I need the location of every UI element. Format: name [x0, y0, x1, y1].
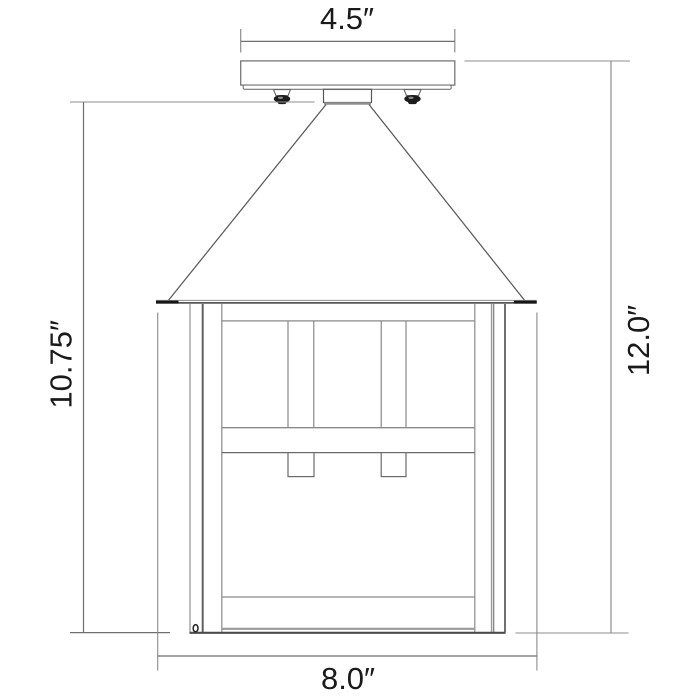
- svg-text:8.0″: 8.0″: [321, 661, 375, 696]
- svg-text:12.0″: 12.0″: [621, 305, 656, 376]
- svg-text:4.5″: 4.5″: [320, 1, 374, 36]
- svg-text:10.75″: 10.75″: [44, 320, 79, 409]
